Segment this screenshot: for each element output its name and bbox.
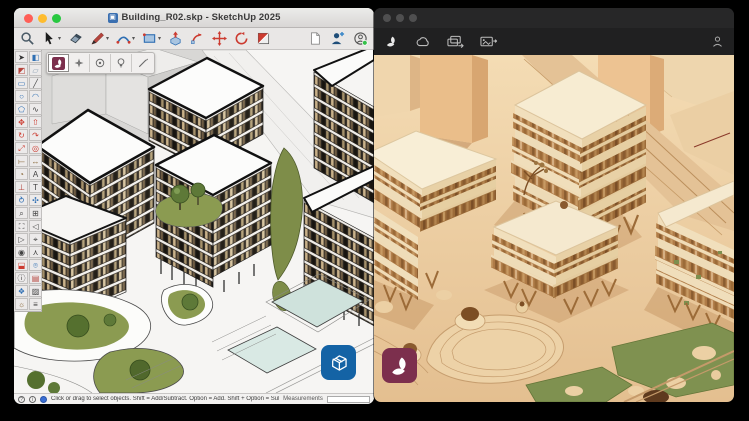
palette-tool-arc[interactable]: ◠ <box>29 90 42 102</box>
palette-tool-materials[interactable]: ▤ <box>29 272 42 284</box>
palette-tool-walk[interactable]: ⋏ <box>29 246 42 258</box>
window-title: Building_R02.skp - SketchUp 2025 <box>122 12 281 23</box>
palette-tool-look-around[interactable]: ◉ <box>15 246 28 258</box>
palette-tool-styles[interactable]: ▨ <box>29 285 42 297</box>
render-app-window <box>374 8 734 402</box>
push-pull-tool-icon[interactable] <box>168 31 183 46</box>
sketchup-scene <box>14 50 374 393</box>
new-document-icon[interactable] <box>308 31 322 46</box>
palette-tool-shadows[interactable]: ☼ <box>15 298 28 310</box>
palette-tool-line[interactable]: ╱ <box>29 77 42 89</box>
render-gallery-icon[interactable] <box>447 35 464 49</box>
help-icon[interactable]: ? <box>18 396 25 403</box>
palette-tool-next[interactable]: ▷ <box>15 233 28 245</box>
minimize-button[interactable] <box>396 14 404 22</box>
sketchup-statusbar: ? i Click or drag to select objects. Shi… <box>14 393 374 404</box>
large-tool-set-palette[interactable]: ➤◧◩▱▭╱○◠⬠∿✥⇧↻↷⤢◎⟝↔◔A⊥T⥁✣⌕⊞⛶◁▷⌖◉⋏⬓⌾ⓘ▤❖▨☼≡ <box>14 50 42 312</box>
skp-document-icon: ▣ <box>108 13 118 23</box>
render-app-toolbar <box>374 28 734 55</box>
palette-tool-make-component[interactable]: ◧ <box>29 51 42 63</box>
palette-tool-text[interactable]: A <box>29 168 42 180</box>
info-icon[interactable]: i <box>29 396 36 403</box>
line-tool-icon[interactable]: ▾ <box>90 31 109 46</box>
sketchup-window: ▣ Building_R02.skp - SketchUp 2025 ▾ ▾ ▾… <box>14 8 374 404</box>
section-plane-tool-icon[interactable] <box>256 31 271 46</box>
palette-tool-components[interactable]: ❖ <box>15 285 28 297</box>
palette-tool-section-plane[interactable]: ⬓ <box>15 259 28 271</box>
sketchup-titlebar[interactable]: ▣ Building_R02.skp - SketchUp 2025 <box>14 8 374 28</box>
status-hint: Click or drag to select objects. Shift =… <box>51 396 279 402</box>
palette-tool-rectangle[interactable]: ▭ <box>15 77 28 89</box>
rotate-tool-icon[interactable] <box>234 31 249 46</box>
palette-tool-previous[interactable]: ◁ <box>29 220 42 232</box>
palette-tool-follow-me[interactable]: ↷ <box>29 129 42 141</box>
add-location-icon[interactable] <box>330 31 345 46</box>
render-result-viewport[interactable] <box>374 55 734 402</box>
palette-tool-add-location[interactable]: ⌾ <box>29 259 42 271</box>
palette-tool-protractor[interactable]: ◔ <box>15 168 28 180</box>
window-controls <box>24 14 61 23</box>
idea-lightbulb-button[interactable] <box>111 54 132 72</box>
measurements-label: Measurements <box>283 396 323 402</box>
palette-tool-push-pull[interactable]: ⇧ <box>29 116 42 128</box>
render-plugin-logo-button[interactable] <box>48 54 69 72</box>
account-icon[interactable] <box>353 31 368 46</box>
zoom-window-button[interactable] <box>409 14 417 22</box>
palette-tool-tape-measure[interactable]: ⟝ <box>15 155 28 167</box>
palette-tool-eraser[interactable]: ▱ <box>29 64 42 76</box>
enhance-sparkle-button[interactable] <box>69 54 90 72</box>
follow-me-tool-icon[interactable] <box>190 31 205 46</box>
target-button[interactable] <box>90 54 111 72</box>
palette-tool-offset[interactable]: ◎ <box>29 142 42 154</box>
palette-tool-dimension[interactable]: ↔ <box>29 155 42 167</box>
sketchup-model-viewport[interactable]: ➤◧◩▱▭╱○◠⬠∿✥⇧↻↷⤢◎⟝↔◔A⊥T⥁✣⌕⊞⛶◁▷⌖◉⋏⬓⌾ⓘ▤❖▨☼≡ <box>14 50 374 393</box>
select-dropdown-caret[interactable]: ▾ <box>58 35 61 42</box>
window-controls-inactive <box>383 14 417 22</box>
cloud-render-icon[interactable] <box>415 35 431 49</box>
desktop: ▣ Building_R02.skp - SketchUp 2025 ▾ ▾ ▾… <box>0 0 749 421</box>
move-tool-icon[interactable] <box>212 31 227 46</box>
palette-tool-zoom-window[interactable]: ⊞ <box>29 207 42 219</box>
geolocation-icon[interactable] <box>40 396 47 403</box>
palette-tool-move[interactable]: ✥ <box>15 116 28 128</box>
palette-tool-rotate[interactable]: ↻ <box>15 129 28 141</box>
app-logo-icon[interactable] <box>384 34 399 49</box>
select-tool-icon[interactable]: ▾ <box>42 31 61 46</box>
palette-tool-zoom-extents[interactable]: ⛶ <box>15 220 28 232</box>
line-dropdown-caret[interactable]: ▾ <box>106 35 109 42</box>
close-button[interactable] <box>383 14 391 22</box>
render-plugin-toolbar <box>46 52 155 74</box>
eraser-tool-icon[interactable] <box>68 31 83 46</box>
palette-tool-freehand[interactable]: ∿ <box>29 103 42 115</box>
palette-tool-polygon[interactable]: ⬠ <box>15 103 28 115</box>
zoom-window-button[interactable] <box>52 14 61 23</box>
sketchup-logo-badge <box>321 345 356 380</box>
measurements-input[interactable] <box>327 396 370 403</box>
palette-tool-3d-text[interactable]: T <box>29 181 42 193</box>
palette-tool-orbit[interactable]: ⥁ <box>15 194 28 206</box>
palette-tool-pan[interactable]: ✣ <box>29 194 42 206</box>
arc-tool-icon[interactable]: ▾ <box>116 31 135 46</box>
close-button[interactable] <box>24 14 33 23</box>
export-image-icon[interactable] <box>480 35 497 49</box>
arc-dropdown-caret[interactable]: ▾ <box>132 35 135 42</box>
minimize-button[interactable] <box>38 14 47 23</box>
palette-tool-scale[interactable]: ⤢ <box>15 142 28 154</box>
palette-tool-select[interactable]: ➤ <box>15 51 28 63</box>
render-scene <box>374 55 734 402</box>
zoom-tool-icon[interactable] <box>20 31 35 46</box>
account-icon[interactable] <box>711 35 724 48</box>
render-app-titlebar[interactable] <box>374 8 734 28</box>
sketchup-main-toolbar: ▾ ▾ ▾ ▾ <box>14 28 374 50</box>
shapes-tool-icon[interactable]: ▾ <box>142 31 161 46</box>
palette-tool-zoom[interactable]: ⌕ <box>15 207 28 219</box>
draw-pen-button[interactable] <box>132 54 153 72</box>
palette-tool-circle[interactable]: ○ <box>15 90 28 102</box>
palette-tool-paint-bucket[interactable]: ◩ <box>15 64 28 76</box>
palette-tool-position-camera[interactable]: ⌖ <box>29 233 42 245</box>
palette-tool-axes[interactable]: ⊥ <box>15 181 28 193</box>
palette-tool-model-info[interactable]: ⓘ <box>15 272 28 284</box>
palette-tool-tags[interactable]: ≡ <box>29 298 42 310</box>
shapes-dropdown-caret[interactable]: ▾ <box>158 35 161 42</box>
render-app-logo-badge <box>382 348 417 383</box>
